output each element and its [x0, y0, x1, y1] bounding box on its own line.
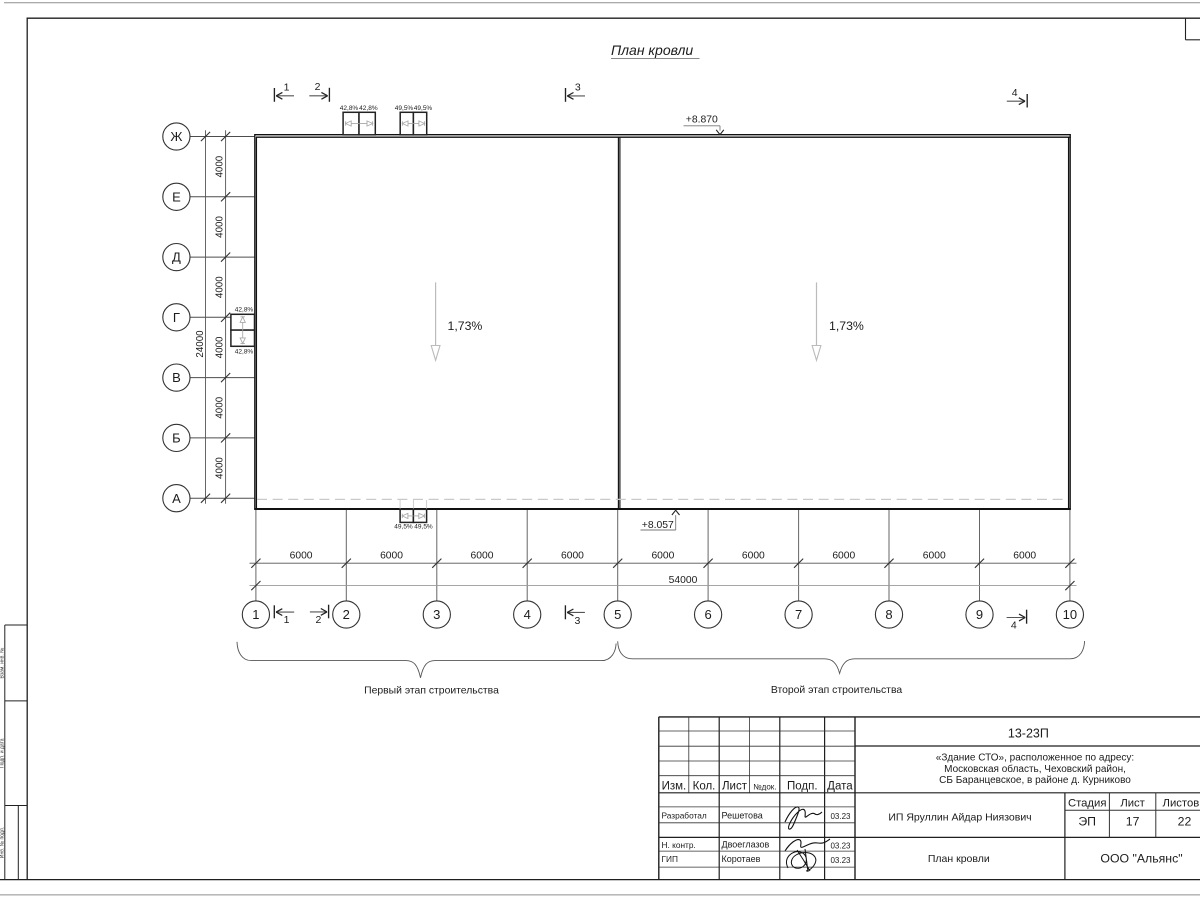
svg-text:1,73%: 1,73%: [829, 319, 864, 333]
svg-text:ИП Яруллин Айдар Ниязович: ИП Яруллин Айдар Ниязович: [888, 811, 1031, 823]
svg-text:СБ Баранцевское, в районе д. К: СБ Баранцевское, в районе д. Курниково: [939, 775, 1131, 786]
svg-text:Двоеглазов: Двоеглазов: [722, 840, 770, 850]
svg-text:4000: 4000: [214, 457, 225, 479]
svg-text:Н. контр.: Н. контр.: [662, 840, 696, 850]
svg-text:Изм.: Изм.: [662, 780, 687, 792]
svg-text:13-23П: 13-23П: [1008, 726, 1049, 740]
svg-text:2: 2: [315, 614, 321, 626]
svg-text:49,5%: 49,5%: [414, 105, 433, 112]
svg-text:4: 4: [524, 607, 531, 622]
svg-text:2: 2: [343, 607, 350, 622]
svg-text:4000: 4000: [214, 216, 225, 238]
svg-text:Решетова: Решетова: [722, 810, 763, 820]
svg-text:6000: 6000: [742, 551, 765, 562]
svg-text:42,8%: 42,8%: [235, 307, 254, 314]
svg-text:03.23: 03.23: [830, 812, 851, 821]
svg-text:ГИП: ГИП: [662, 854, 678, 864]
svg-text:3: 3: [575, 82, 581, 94]
svg-text:Взам. инв. №: Взам. инв. №: [0, 648, 6, 679]
svg-text:4000: 4000: [214, 396, 225, 418]
svg-text:Е: Е: [172, 189, 181, 204]
svg-text:10: 10: [1063, 607, 1077, 622]
svg-text:Стадия: Стадия: [1068, 798, 1107, 810]
svg-text:42,8%: 42,8%: [359, 105, 378, 112]
svg-text:1: 1: [284, 614, 290, 626]
svg-text:План кровли: План кровли: [611, 42, 693, 58]
svg-text:6000: 6000: [1013, 551, 1036, 562]
svg-text:6000: 6000: [923, 551, 946, 562]
svg-text:6000: 6000: [651, 551, 674, 562]
svg-text:Дата: Дата: [827, 780, 853, 792]
svg-text:03.23: 03.23: [830, 856, 851, 865]
svg-text:9: 9: [976, 607, 983, 622]
svg-text:Разработал: Разработал: [662, 811, 707, 821]
svg-text:Г: Г: [173, 310, 180, 325]
svg-text:5: 5: [614, 607, 621, 622]
svg-text:3: 3: [433, 607, 440, 622]
svg-text:План кровли: План кровли: [928, 853, 990, 865]
svg-text:Ж: Ж: [170, 129, 182, 144]
svg-text:2: 2: [315, 81, 321, 93]
svg-text:ЭП: ЭП: [1078, 815, 1096, 829]
svg-text:7: 7: [795, 607, 802, 622]
svg-text:Б: Б: [172, 431, 181, 446]
svg-text:22: 22: [1178, 815, 1192, 829]
svg-text:В: В: [172, 370, 181, 385]
svg-text:49,5%: 49,5%: [394, 524, 413, 531]
svg-text:Инв. № подл.: Инв. № подл.: [0, 827, 6, 858]
svg-text:№док.: №док.: [753, 783, 776, 792]
svg-text:Лист: Лист: [1120, 798, 1145, 810]
svg-text:6: 6: [704, 607, 711, 622]
svg-text:6000: 6000: [290, 551, 313, 562]
svg-text:Второй этап строительства: Второй этап строительства: [771, 685, 902, 696]
svg-text:Коротаев: Коротаев: [722, 854, 761, 864]
svg-text:49,5%: 49,5%: [395, 105, 414, 112]
svg-text:8: 8: [885, 607, 892, 622]
svg-text:3: 3: [574, 615, 580, 627]
svg-text:Лист: Лист: [722, 780, 748, 792]
svg-text:Подп.: Подп.: [787, 780, 818, 792]
svg-text:+8.870: +8.870: [686, 115, 718, 126]
svg-text:4000: 4000: [214, 336, 225, 358]
svg-text:ООО "Альянс": ООО "Альянс": [1100, 852, 1182, 866]
svg-text:42,8%: 42,8%: [340, 105, 359, 112]
svg-text:«Здание СТО», расположенное по: «Здание СТО», расположенное по адресу:: [936, 753, 1134, 764]
svg-text:6000: 6000: [561, 551, 584, 562]
svg-text:Кол.: Кол.: [693, 780, 716, 792]
svg-text:54000: 54000: [669, 575, 698, 586]
svg-text:4: 4: [1012, 87, 1018, 99]
svg-text:17: 17: [1126, 815, 1140, 829]
svg-text:4: 4: [1011, 620, 1017, 632]
svg-text:24000: 24000: [195, 330, 206, 358]
svg-text:Первый этап строительства: Первый этап строительства: [364, 686, 499, 697]
svg-text:А: А: [172, 491, 181, 506]
svg-text:4000: 4000: [214, 276, 225, 298]
svg-text:1,73%: 1,73%: [448, 319, 483, 333]
svg-text:Листов: Листов: [1163, 798, 1200, 810]
svg-text:1: 1: [252, 607, 259, 622]
svg-text:6000: 6000: [832, 551, 855, 562]
svg-text:Подп. и дата: Подп. и дата: [0, 738, 6, 768]
svg-text:1: 1: [284, 81, 290, 93]
svg-text:6000: 6000: [471, 551, 494, 562]
svg-text:Д: Д: [172, 250, 181, 265]
svg-text:Московская область, Чеховский: Московская область, Чеховский район,: [944, 763, 1126, 775]
svg-text:03.23: 03.23: [830, 841, 851, 850]
svg-text:49,5%: 49,5%: [414, 524, 433, 531]
svg-text:42,8%: 42,8%: [235, 349, 254, 356]
svg-text:6000: 6000: [380, 551, 403, 562]
svg-text:4000: 4000: [214, 155, 225, 177]
